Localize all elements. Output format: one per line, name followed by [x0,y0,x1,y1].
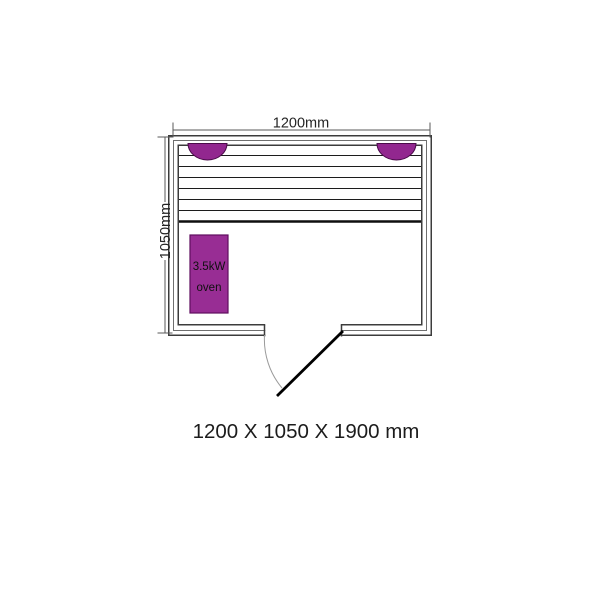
headrest-left [188,144,227,161]
oven-label-power: 3.5kW [193,261,226,273]
sauna-floor-plan: 3.5kW oven 1200mm 1050mm 1200 X 1050 X 1… [0,0,600,600]
headrest-right [377,144,416,161]
bench-slats [179,156,421,222]
door-opening [265,320,341,342]
oven-rect [190,235,228,313]
door-swing-arc [264,335,282,388]
size-caption: 1200 X 1050 X 1900 mm [193,420,420,443]
dimension-left: 1050mm [158,137,175,333]
sauna-floor-plan-page: 3.5kW oven 1200mm 1050mm 1200 X 1050 X 1… [0,0,600,600]
dimension-top-label: 1200mm [273,116,329,132]
dimension-left-label: 1050mm [158,203,174,259]
dimension-top: 1200mm [173,116,430,138]
oven-block: 3.5kW oven [190,235,228,313]
oven-label-name: oven [197,282,222,294]
